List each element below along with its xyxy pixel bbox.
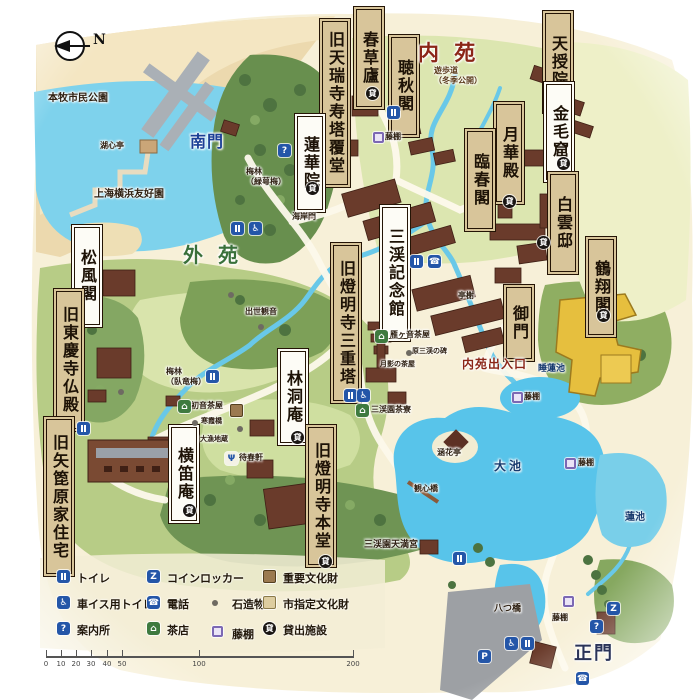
label-三渓園天満宮: 三渓園天満宮 (364, 540, 418, 551)
label-内苑出入口: 内苑出入口 (462, 357, 527, 372)
fork-icon: Ψ (225, 452, 238, 465)
phone-icon: ☎ (147, 596, 160, 609)
scale-tick-label: 100 (192, 660, 205, 668)
scale-tick-label: 30 (87, 660, 96, 668)
wheelchair-icon: ♿ (357, 389, 370, 402)
legend-tea-label: 茶店 (167, 622, 189, 638)
phone-icon: ☎ (576, 672, 589, 685)
label-藤棚: 藤棚 (385, 131, 401, 141)
sankeien-garden-map: N 春草廬旧天瑞寺寿塔覆堂聴秋閣天授院金毛窟月華殿臨春閣白雲邸鶴翔閣蓮華院御門三… (0, 0, 700, 700)
scale-tick-label: 50 (118, 660, 127, 668)
label-雁ヶ音茶屋: 雁ヶ音茶屋 (390, 329, 430, 339)
label-三渓園茶寮: 三渓園茶寮 (371, 404, 411, 414)
scale-tick (199, 650, 200, 657)
legend-phone-label: 電話 (167, 596, 189, 612)
label-三渓記念館: 三渓記念館 (382, 207, 408, 339)
toilet-icon (206, 370, 219, 383)
rental-icon: 貸 (319, 555, 332, 568)
tea-icon: ⌂ (147, 622, 160, 635)
legend-ccp-label: 市指定文化財 (283, 596, 349, 612)
tea-icon: ⌂ (178, 400, 191, 413)
label-大漁地蔵: 大漁地蔵 (200, 435, 228, 444)
rental-icon: 貸 (537, 236, 550, 249)
rental-icon: 貸 (597, 309, 610, 322)
label-聴秋閣: 聴秋閣 (391, 37, 417, 135)
scale-tick (76, 650, 77, 657)
rental-icon: 貸 (366, 87, 379, 100)
label-大池: 大池 (494, 459, 524, 474)
tea-icon: ⌂ (375, 330, 388, 343)
label-海岸門: 海岸門 (292, 211, 316, 221)
legend-toilet-label: トイレ (77, 570, 110, 586)
label-藤棚: 藤棚 (552, 612, 568, 622)
label-原三渓の碑: 原三渓の碑 (412, 347, 447, 356)
label-内苑: 内 苑 (418, 40, 479, 66)
label-御門: 御門 (506, 287, 532, 359)
toilet-icon (453, 552, 466, 565)
label-上海横浜友好園: 上海横浜友好園 (94, 189, 164, 202)
stone-icon (228, 292, 234, 298)
scale-tick (107, 650, 108, 657)
label-藤棚: 藤棚 (578, 457, 594, 467)
label-旧燈明寺本堂: 旧燈明寺本堂 (308, 427, 334, 565)
stone-icon (212, 600, 218, 606)
label-旧天瑞寺寿塔覆堂: 旧天瑞寺寿塔覆堂 (322, 21, 348, 185)
legend-wisteria-label: 藤棚 (232, 626, 254, 642)
legend-wheelchair-label: 車イス用トイレ (77, 596, 154, 612)
label-梅林臥竜梅: 梅林 （臥竜梅） (166, 366, 206, 386)
stone-icon (258, 324, 264, 330)
label-八つ橋: 八つ橋 (494, 604, 521, 615)
label-月華殿: 月華殿 (496, 104, 522, 202)
locker-icon: Z (147, 570, 160, 583)
legend-rental-label: 貸出施設 (283, 622, 327, 638)
tea-icon: ⌂ (356, 404, 369, 417)
label-出世観音: 出世観音 (245, 306, 277, 316)
label-待春軒: 待春軒 (239, 452, 263, 462)
scale-tick (91, 650, 92, 657)
label-本牧市民公園: 本牧市民公園 (48, 93, 108, 106)
scale-tick-label: 0 (44, 660, 48, 668)
toilet-icon (231, 222, 244, 235)
rental-icon: 貸 (306, 182, 319, 195)
rental-icon: 貸 (183, 504, 196, 517)
scale-tick-label: 40 (103, 660, 112, 668)
label-旧燈明寺三重塔: 旧燈明寺三重塔 (333, 245, 359, 401)
scale-tick (61, 650, 62, 657)
toilet-icon (387, 106, 400, 119)
scale-tick (353, 650, 354, 657)
toilet-icon (521, 637, 534, 650)
compass-icon (50, 24, 96, 70)
scale-tick (122, 650, 123, 657)
toilet-icon (57, 570, 70, 583)
wheelchair-icon: ♿ (57, 596, 70, 609)
legend-icp-label: 重要文化財 (283, 570, 338, 586)
label-正門: 正門 (574, 643, 614, 666)
icp-icon (230, 404, 243, 417)
phone-icon: ☎ (428, 255, 441, 268)
icp-icon (263, 570, 276, 583)
stone-icon (406, 350, 412, 356)
label-白雲邸: 白雲邸 (550, 174, 576, 272)
label-旧矢箆原家住宅: 旧矢箆原家住宅 (46, 419, 72, 574)
label-蓮池: 蓮池 (625, 512, 645, 525)
wisteria-icon (212, 626, 223, 637)
legend-stone-label: 石造物 (232, 596, 265, 612)
label-外苑: 外 苑 (183, 243, 242, 268)
parking-icon: P (478, 650, 491, 663)
label-梅林緑萼梅: 梅林 （緑萼梅） (246, 166, 286, 186)
rental-icon: 貸 (291, 431, 304, 444)
wisteria-icon (512, 392, 523, 403)
label-南門: 南門 (190, 132, 224, 152)
info-icon: ? (278, 144, 291, 157)
label-藤棚: 藤棚 (524, 391, 540, 401)
scale-tick (46, 650, 47, 657)
scale-tick-label: 10 (57, 660, 66, 668)
label-月影の茶屋: 月影の茶屋 (380, 360, 415, 369)
label-湖心亭: 湖心亭 (100, 140, 124, 150)
wisteria-icon (563, 596, 574, 607)
rental-icon: 貸 (263, 622, 276, 635)
locker-icon: Z (607, 602, 620, 615)
compass-north-label: N (93, 32, 106, 48)
legend-locker-label: コインロッカー (167, 570, 244, 586)
rental-icon: 貸 (503, 195, 516, 208)
info-icon: ? (57, 622, 70, 635)
scale-bar-line (46, 656, 354, 658)
label-旧東慶寺仏殿: 旧東慶寺仏殿 (56, 291, 82, 429)
legend-info-label: 案内所 (77, 622, 110, 638)
label-観心橋: 観心橋 (414, 483, 438, 493)
label-遊歩道冬季公開: 遊歩道 （冬季公開） (434, 65, 482, 85)
stone-icon (237, 426, 243, 432)
scale-tick-label: 200 (346, 660, 359, 668)
label-蓮華院: 蓮華院 (297, 116, 323, 210)
stone-icon (192, 420, 198, 426)
label-睡蓮池: 睡蓮池 (538, 364, 565, 375)
toilet-icon (344, 389, 357, 402)
toilet-icon (410, 255, 423, 268)
label-臨春閣: 臨春閣 (467, 131, 493, 229)
rental-icon: 貸 (557, 157, 570, 170)
ccp-icon (263, 596, 276, 609)
wheelchair-icon: ♿ (249, 222, 262, 235)
wisteria-icon (373, 132, 384, 143)
label-初音茶屋: 初音茶屋 (191, 400, 223, 410)
scale-tick-label: 20 (72, 660, 81, 668)
label-亭榭: 亭榭 (458, 290, 474, 300)
wheelchair-icon: ♿ (505, 637, 518, 650)
wisteria-icon (565, 458, 576, 469)
toilet-icon (77, 422, 90, 435)
label-寒霞橋: 寒霞橋 (201, 417, 222, 426)
stone-icon (118, 389, 124, 395)
label-涵花亭: 涵花亭 (437, 447, 461, 457)
label-林洞庵: 林洞庵 (280, 351, 306, 443)
info-icon: ? (590, 620, 603, 633)
